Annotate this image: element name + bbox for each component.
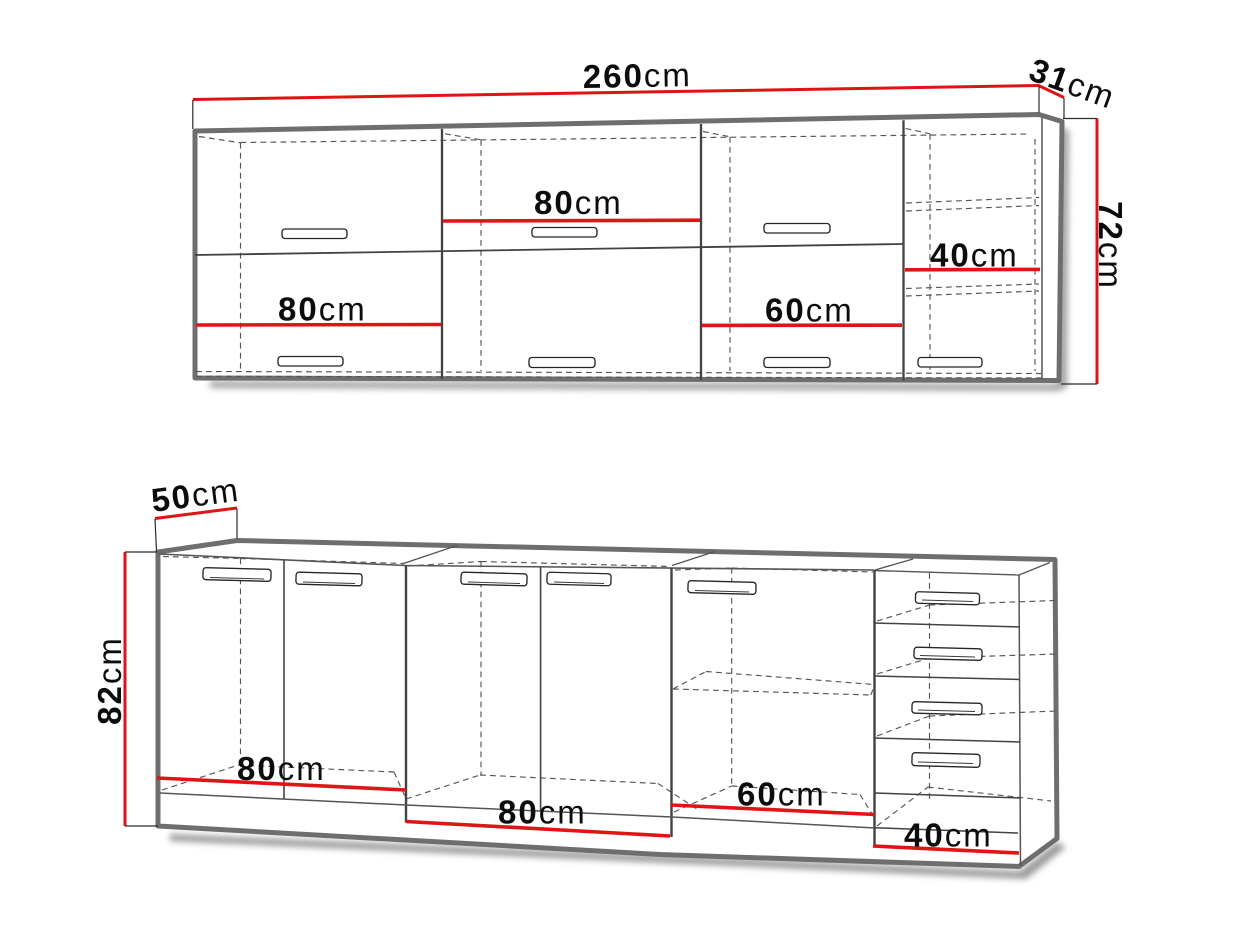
svg-text:60cm: 60cm [737, 776, 826, 813]
svg-text:72cm: 72cm [1092, 201, 1129, 290]
svg-text:80cm: 80cm [237, 750, 326, 787]
svg-text:80cm: 80cm [498, 794, 587, 831]
svg-text:80cm: 80cm [534, 184, 623, 221]
svg-text:60cm: 60cm [765, 292, 854, 329]
svg-text:82cm: 82cm [91, 636, 128, 725]
svg-text:40cm: 40cm [930, 237, 1019, 274]
svg-text:40cm: 40cm [904, 817, 993, 854]
svg-text:80cm: 80cm [278, 291, 367, 328]
svg-text:50cm: 50cm [149, 471, 242, 519]
svg-text:260cm: 260cm [582, 56, 692, 95]
